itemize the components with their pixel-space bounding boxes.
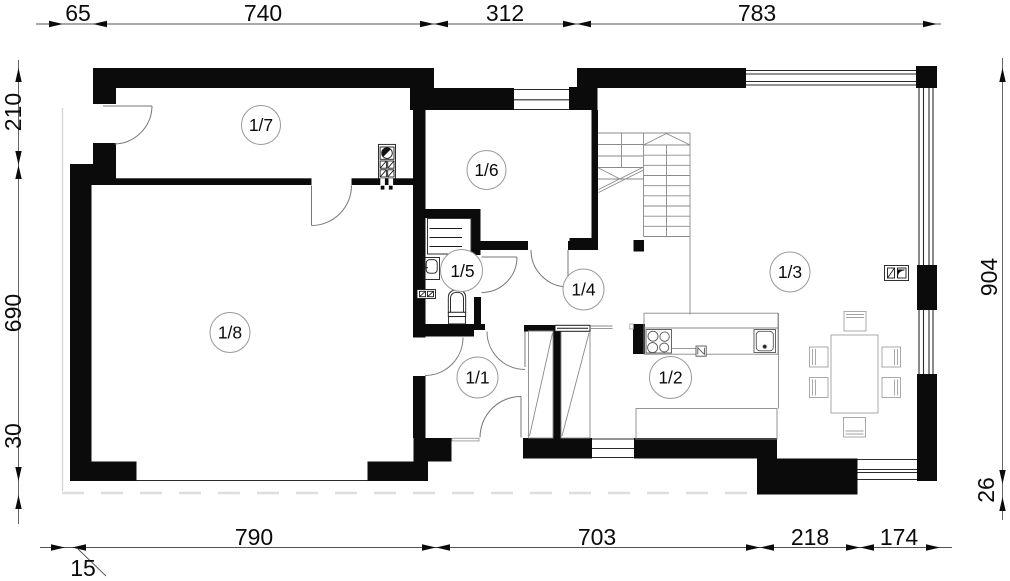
svg-text:1/6: 1/6 <box>474 160 498 180</box>
svg-text:904: 904 <box>976 258 1002 297</box>
svg-text:15: 15 <box>70 555 96 581</box>
svg-text:1/5: 1/5 <box>450 261 474 281</box>
svg-text:690: 690 <box>0 294 26 332</box>
svg-text:1/2: 1/2 <box>658 368 682 388</box>
svg-text:1/4: 1/4 <box>571 280 596 300</box>
svg-text:65: 65 <box>65 0 91 26</box>
svg-text:703: 703 <box>578 524 616 550</box>
svg-text:1/7: 1/7 <box>249 115 273 135</box>
svg-text:312: 312 <box>486 0 524 26</box>
svg-text:30: 30 <box>0 423 26 449</box>
svg-text:218: 218 <box>791 524 829 550</box>
svg-text:1/1: 1/1 <box>465 368 489 388</box>
svg-text:1/8: 1/8 <box>218 323 242 343</box>
svg-text:1/3: 1/3 <box>778 262 802 282</box>
svg-text:740: 740 <box>244 0 282 26</box>
svg-text:26: 26 <box>973 477 999 503</box>
svg-text:790: 790 <box>235 524 273 550</box>
svg-text:174: 174 <box>880 524 919 550</box>
svg-text:783: 783 <box>738 0 776 26</box>
svg-text:210: 210 <box>0 93 26 131</box>
